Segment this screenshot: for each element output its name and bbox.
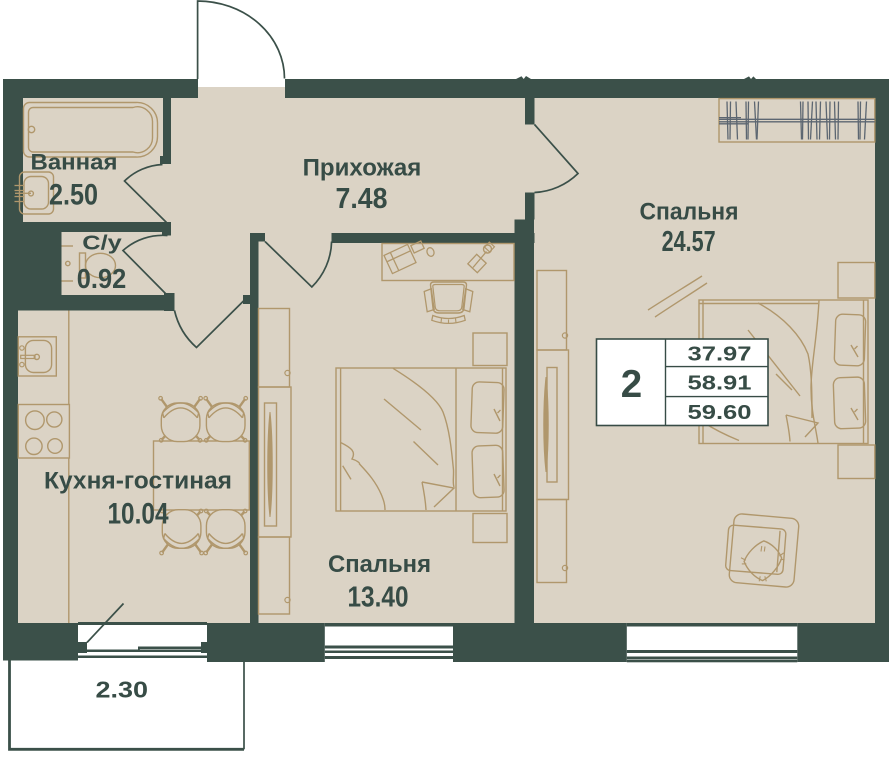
svg-text:С/у: С/у [82, 233, 123, 255]
svg-text:58.91: 58.91 [688, 372, 752, 395]
svg-text:Спальня: Спальня [640, 199, 739, 226]
svg-text:37.97: 37.97 [688, 343, 752, 366]
svg-text:2.30: 2.30 [96, 676, 149, 702]
svg-text:24.57: 24.57 [662, 226, 716, 258]
svg-text:59.60: 59.60 [688, 401, 752, 424]
svg-text:2.50: 2.50 [49, 179, 98, 212]
svg-text:10.04: 10.04 [108, 498, 169, 531]
svg-text:13.40: 13.40 [348, 582, 409, 614]
svg-text:Ванная: Ванная [31, 150, 118, 175]
svg-text:Прихожая: Прихожая [303, 154, 422, 181]
svg-text:7.48: 7.48 [336, 183, 388, 215]
svg-text:Спальня: Спальня [328, 551, 431, 578]
svg-text:0.92: 0.92 [77, 263, 126, 294]
svg-text:2: 2 [621, 363, 642, 406]
svg-text:Кухня-гостиная: Кухня-гостиная [44, 468, 232, 495]
